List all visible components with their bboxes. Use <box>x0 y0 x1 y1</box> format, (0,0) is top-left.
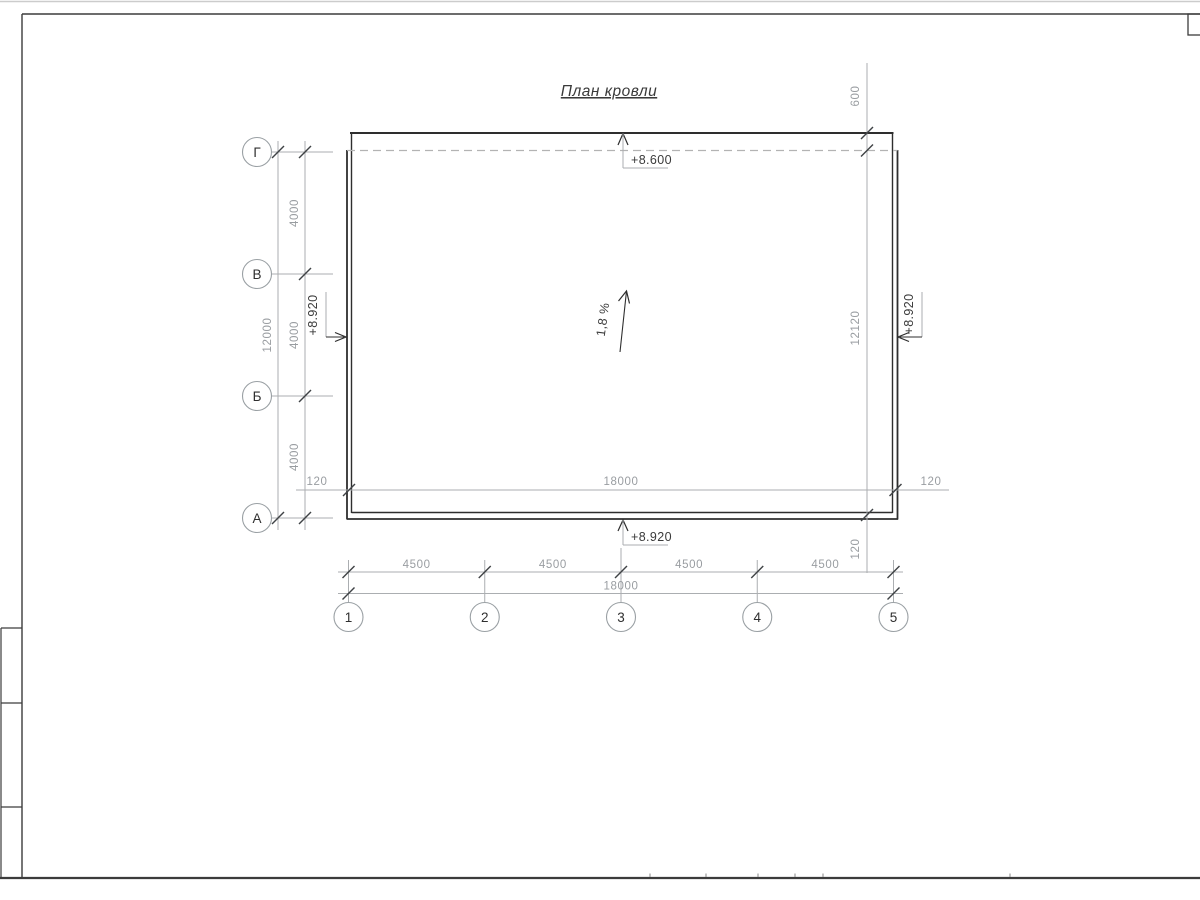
grid-col-label: 3 <box>617 610 625 625</box>
grid-col-label: 2 <box>481 610 489 625</box>
dim-label-col-segment: 4500 <box>675 559 703 571</box>
dim-label-parapet-right: 120 <box>921 476 942 488</box>
dim-label-right-height: 12120 <box>850 311 862 346</box>
slope-marker: 1,8 % <box>594 291 630 352</box>
dim-label-top-offset: 600 <box>850 86 862 107</box>
elevation-right-value: +8.920 <box>902 294 916 335</box>
dim-label-width-inner: 18000 <box>604 476 639 488</box>
dim-label-row-segment: 4000 <box>289 321 301 349</box>
grid-row-leaders <box>272 152 334 518</box>
grid-row-label: В <box>252 267 261 282</box>
dim-label-row-segment: 4000 <box>289 199 301 227</box>
elevation-left-value: +8.920 <box>306 295 320 336</box>
dim-label-row-segment: 4000 <box>289 443 301 471</box>
dim-label-row-total: 12000 <box>262 318 274 353</box>
drawing-title: План кровли <box>561 83 657 100</box>
frame-margin-cells <box>1 628 22 878</box>
dim-label-col-segment: 4500 <box>403 559 431 571</box>
right-dimensions: 600 12120 120 <box>850 63 873 573</box>
elevation-bottom: +8.920 <box>618 520 672 545</box>
grid-col-label: 5 <box>890 610 898 625</box>
left-dimensions: 4000 4000 4000 12000 <box>262 141 311 530</box>
grid-row-label: Б <box>253 389 262 404</box>
slope-arrowhead-icon <box>619 291 630 304</box>
dim-label-parapet-bottom: 120 <box>850 539 862 560</box>
elevation-bottom-value: +8.920 <box>631 530 672 544</box>
dim-label-col-total: 18000 <box>604 581 639 593</box>
dim-label-col-segment: 4500 <box>539 559 567 571</box>
grid-col-label: 1 <box>345 610 353 625</box>
grid-col-label: 4 <box>753 610 761 625</box>
roof-plan-canvas: План кровли Г В Б А <box>0 0 1200 900</box>
grid-row-label: А <box>252 511 261 526</box>
slope-value: 1,8 % <box>594 302 613 338</box>
elevation-top-value: +8.600 <box>631 153 672 167</box>
elevation-right: +8.920 <box>898 292 922 342</box>
elevation-left: +8.920 <box>306 292 346 342</box>
dim-label-col-segment: 4500 <box>811 559 839 571</box>
grid-row-label: Г <box>253 145 261 160</box>
drawing-sheet: План кровли Г В Б А <box>0 0 1200 900</box>
slope-arrow-icon <box>620 291 627 352</box>
inner-width-dimension: 120 18000 120 <box>296 476 949 496</box>
title-block-ticks <box>650 874 1010 878</box>
frame-corner-box <box>1188 14 1200 35</box>
dim-label-parapet-left: 120 <box>307 476 328 488</box>
